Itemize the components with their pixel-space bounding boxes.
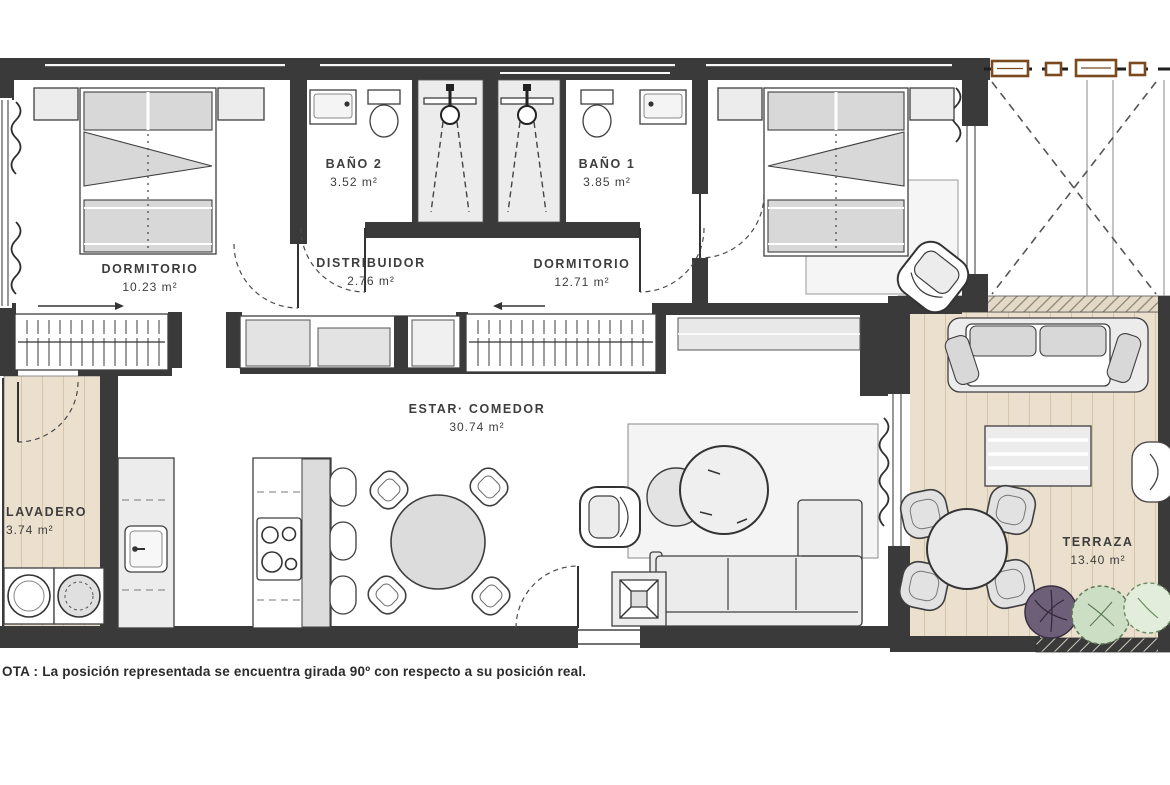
room-name: BAÑO 1 (579, 157, 636, 171)
outdoor-side-chair (1132, 442, 1170, 502)
toilet-symbol (368, 90, 400, 137)
stool (330, 576, 356, 614)
pergola-beams (984, 60, 1170, 76)
stool (330, 468, 356, 506)
void-x-area (992, 80, 1164, 296)
room-label-dormitorio-2: DORMITORIO 12.71 m² (533, 257, 630, 289)
room-label-distribuidor: DISTRIBUIDOR 2.76 m² (316, 256, 425, 288)
dining-set (364, 464, 515, 620)
room-label-lavadero: LAVADERO 3.74 m² (6, 505, 87, 537)
floor-plan-page: DORMITORIO 10.23 m² BAÑO 2 3.52 m² BAÑO … (0, 0, 1170, 785)
room-name: LAVADERO (6, 505, 87, 519)
coffee-table-large (680, 446, 768, 534)
room-label-terraza: TERRAZA 13.40 m² (1063, 535, 1134, 567)
rotation-note: OTA : La posición representada se encuen… (2, 664, 586, 679)
outdoor-sofa (943, 318, 1148, 392)
laundry-machines (4, 568, 104, 624)
kitchen-island (253, 458, 356, 628)
room-name: DORMITORIO (533, 257, 630, 271)
room-label-bano-1: BAÑO 1 3.85 m² (579, 157, 636, 189)
wardrobe-2 (466, 302, 656, 372)
sink-symbol (310, 90, 356, 124)
room-label-bano-2: BAÑO 2 3.52 m² (326, 157, 383, 189)
room-name: TERRAZA (1063, 535, 1134, 549)
bathroom-2-fixtures (310, 80, 483, 222)
armchair (580, 487, 640, 547)
room-area: 13.40 m² (1063, 553, 1134, 567)
room-area: 12.71 m² (533, 275, 630, 289)
room-label-estar-comedor: ESTAR· COMEDOR 30.74 m² (409, 402, 546, 434)
dryer-symbol (58, 575, 100, 617)
outdoor-coffee-table (985, 426, 1091, 486)
shower-symbol (418, 80, 483, 222)
sink-symbol (640, 90, 686, 124)
wardrobe-1 (15, 302, 168, 370)
room-name: DISTRIBUIDOR (316, 256, 425, 270)
dining-table (391, 495, 485, 589)
hall-cabinets (240, 316, 460, 368)
room-name: DORMITORIO (101, 262, 198, 276)
room-area: 10.23 m² (101, 280, 198, 294)
bathroom-1-fixtures (498, 80, 686, 222)
side-table-x (612, 572, 666, 626)
bedroom-1-furniture (34, 88, 264, 254)
outdoor-table (927, 509, 1007, 589)
living-area-furniture (580, 424, 878, 626)
sideboard (678, 318, 860, 350)
room-area: 3.85 m² (579, 175, 636, 189)
room-name: BAÑO 2 (326, 157, 383, 171)
room-label-dormitorio-1: DORMITORIO 10.23 m² (101, 262, 198, 294)
kitchen-sink (125, 526, 167, 572)
room-area: 3.52 m² (326, 175, 383, 189)
kitchen-counter (118, 458, 174, 628)
toilet-symbol (581, 90, 613, 137)
room-area: 3.74 m² (6, 523, 87, 537)
room-area: 30.74 m² (409, 420, 546, 434)
bedroom-2-furniture (718, 88, 975, 319)
hob-symbol (257, 518, 301, 580)
stool (330, 522, 356, 560)
shower-symbol (498, 80, 560, 222)
room-name: ESTAR· COMEDOR (409, 402, 546, 416)
room-area: 2.76 m² (316, 274, 425, 288)
